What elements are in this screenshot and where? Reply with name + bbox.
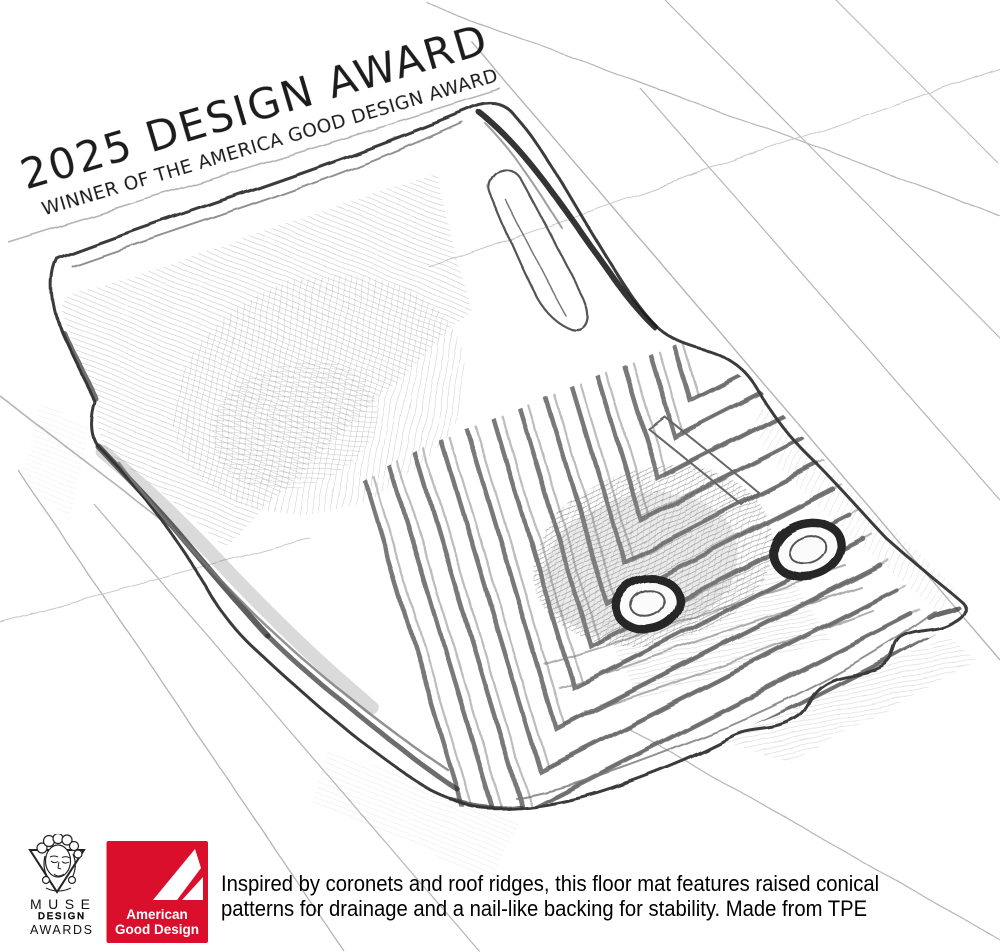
muse-wordmark: MUSE [30,896,94,912]
product-description: Inspired by coronets and roof ridges, th… [221,872,879,921]
muse-design-label: DESIGN [38,911,86,922]
american-good-design-logo: American Good Design [106,840,210,944]
agd-line2: Good Design [115,922,199,937]
caption-line-2: patterns for drainage and a nail-like ba… [221,897,879,922]
agd-line1: American [126,907,188,922]
muse-design-awards-logo: MUSE DESIGN AWARDS [22,834,102,952]
mat-sketch [20,104,1000,952]
muse-awards-label: AWARDS [30,923,94,937]
caption-line-1: Inspired by coronets and roof ridges, th… [221,872,879,897]
product-image: 2025 DESIGN AWARD WINNER OF THE AMERICA … [0,0,1000,952]
